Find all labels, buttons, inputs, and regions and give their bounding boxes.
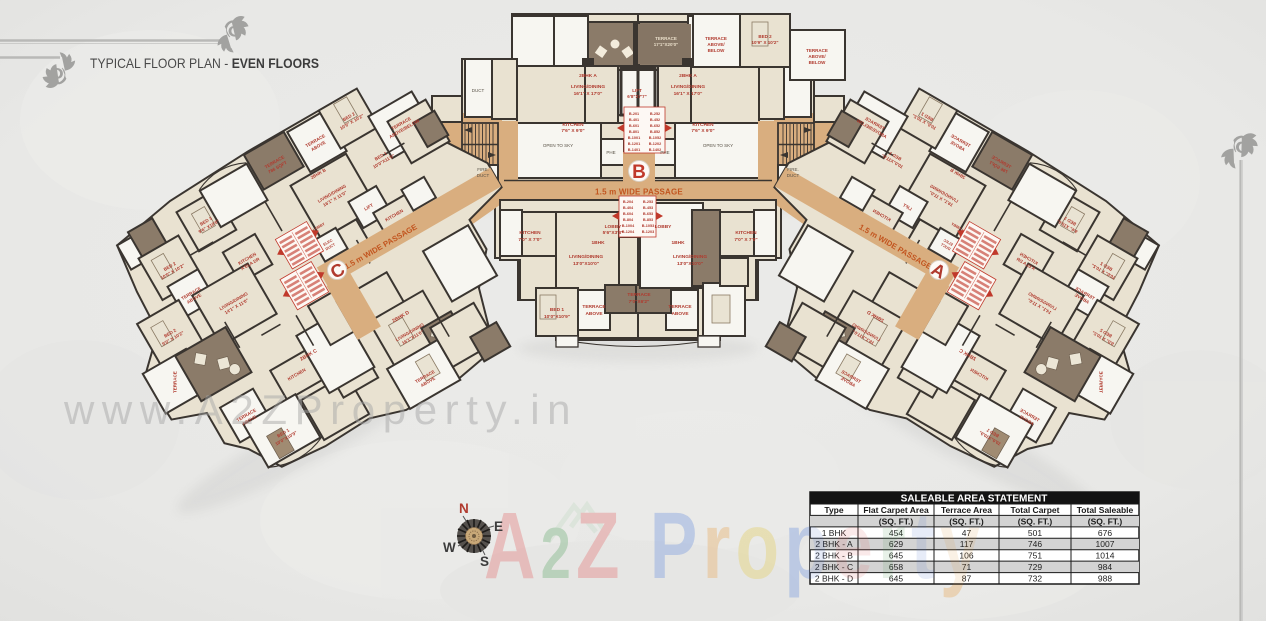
- svg-text:LOBBY: LOBBY: [655, 224, 673, 230]
- svg-text:S: S: [480, 554, 489, 569]
- svg-text:DUCT: DUCT: [477, 173, 490, 178]
- svg-text:988: 988: [1098, 574, 1112, 584]
- svg-text:B-201: B-201: [629, 112, 639, 116]
- svg-text:(SQ. FT.): (SQ. FT.): [1088, 516, 1123, 526]
- svg-text:729: 729: [1028, 562, 1042, 572]
- svg-text:B-652: B-652: [650, 124, 660, 128]
- svg-text:B-452: B-452: [650, 118, 660, 122]
- svg-text:984: 984: [1098, 562, 1112, 572]
- svg-text:6'8"X7'7": 6'8"X7'7": [627, 94, 646, 99]
- svg-text:16'1" X 17'0": 16'1" X 17'0": [574, 91, 603, 97]
- svg-text:LIVING/DINING: LIVING/DINING: [569, 254, 603, 260]
- svg-text:ABOVE/: ABOVE/: [808, 54, 826, 59]
- svg-text:FIRE.: FIRE.: [787, 167, 799, 172]
- svg-text:B-604: B-604: [623, 212, 634, 216]
- svg-text:N: N: [459, 501, 469, 516]
- svg-text:B-1052: B-1052: [649, 136, 661, 140]
- svg-text:KITCHEN: KITCHEN: [562, 122, 584, 128]
- svg-text:BED 1: BED 1: [550, 307, 564, 313]
- svg-text:KITCHEN: KITCHEN: [519, 230, 541, 236]
- svg-text:KITCHEN: KITCHEN: [735, 230, 757, 236]
- svg-text:16'1" X 17'0": 16'1" X 17'0": [674, 91, 703, 97]
- svg-text:B-404: B-404: [623, 206, 634, 210]
- svg-text:1BHK: 1BHK: [671, 240, 685, 246]
- svg-text:PHE: PHE: [606, 150, 615, 155]
- svg-text:B-252: B-252: [650, 112, 660, 116]
- svg-text:B-852: B-852: [650, 130, 660, 134]
- svg-text:B-853: B-853: [643, 218, 653, 222]
- svg-text:B-801: B-801: [629, 130, 639, 134]
- svg-text:LIFT: LIFT: [632, 88, 642, 93]
- svg-text:B-453: B-453: [643, 206, 653, 210]
- svg-text:5'6"X3'8": 5'6"X3'8": [603, 230, 624, 236]
- svg-text:FIRE.: FIRE.: [477, 167, 489, 172]
- svg-text:1007: 1007: [1096, 539, 1115, 549]
- svg-text:B-253: B-253: [643, 200, 653, 204]
- svg-text:B-401: B-401: [629, 118, 639, 122]
- svg-text:TERRACE: TERRACE: [655, 36, 677, 41]
- svg-text:TERRACE: TERRACE: [806, 48, 828, 53]
- svg-text:2BHK A: 2BHK A: [579, 73, 597, 79]
- svg-text:10'0"X10'9": 10'0"X10'9": [544, 314, 570, 320]
- svg-text:KITCHEN: KITCHEN: [692, 122, 714, 128]
- svg-text:DUCT: DUCT: [787, 173, 800, 178]
- svg-text:LIVING/DINING: LIVING/DINING: [671, 84, 705, 90]
- svg-text:TERRACE: TERRACE: [705, 36, 727, 41]
- svg-text:ABOVE: ABOVE: [671, 311, 689, 317]
- svg-text:B-1201: B-1201: [628, 142, 640, 146]
- svg-text:Total Carpet: Total Carpet: [1011, 505, 1060, 515]
- svg-text:DUCT: DUCT: [472, 88, 485, 93]
- svg-text:LOBBY: LOBBY: [605, 224, 623, 230]
- svg-text:B-1402: B-1402: [649, 148, 661, 152]
- svg-text:B-1053: B-1053: [642, 224, 654, 228]
- svg-text:LIVING/DINING: LIVING/DINING: [673, 254, 707, 260]
- svg-text:E: E: [494, 519, 503, 534]
- svg-text:732: 732: [1028, 574, 1042, 584]
- svg-text:7'0" X 7'0": 7'0" X 7'0": [518, 237, 541, 243]
- svg-text:1BHK: 1BHK: [591, 240, 605, 246]
- svg-text:LIVING/DINING: LIVING/DINING: [571, 84, 605, 90]
- svg-text:B-1202: B-1202: [649, 142, 661, 146]
- svg-text:BED 2: BED 2: [758, 34, 772, 39]
- svg-text:B-1004: B-1004: [622, 224, 635, 228]
- svg-text:7'0"X6'2": 7'0"X6'2": [629, 299, 650, 305]
- svg-text:Total Saleable: Total Saleable: [1077, 505, 1134, 515]
- svg-text:B-653: B-653: [643, 212, 653, 216]
- svg-text:B: B: [632, 162, 646, 183]
- svg-text:676: 676: [1098, 528, 1112, 538]
- svg-text:BELOW: BELOW: [809, 60, 827, 65]
- svg-text:OPEN TO SKY: OPEN TO SKY: [703, 143, 733, 148]
- svg-text:TERRACE: TERRACE: [668, 304, 692, 310]
- svg-text:746: 746: [1028, 539, 1042, 549]
- svg-text:7'0" X 7'0": 7'0" X 7'0": [734, 237, 757, 243]
- svg-text:W: W: [443, 540, 456, 555]
- svg-text:B-1401: B-1401: [628, 148, 640, 152]
- svg-text:TERRACE: TERRACE: [582, 304, 606, 310]
- svg-text:PHE: PHE: [660, 150, 669, 155]
- svg-text:13'0"X10'0": 13'0"X10'0": [573, 261, 599, 267]
- svg-text:2BHK A: 2BHK A: [679, 73, 697, 79]
- svg-text:B-204: B-204: [623, 200, 634, 204]
- svg-text:OPEN TO SKY: OPEN TO SKY: [543, 143, 573, 148]
- svg-text:BELOW: BELOW: [708, 48, 726, 53]
- svg-text:B-1001: B-1001: [628, 136, 640, 140]
- svg-text:7'6" X 9'0": 7'6" X 9'0": [561, 128, 584, 134]
- svg-text:501: 501: [1028, 528, 1042, 538]
- svg-text:B-601: B-601: [629, 124, 639, 128]
- svg-text:10'9" X 10'2": 10'9" X 10'2": [752, 40, 779, 45]
- svg-text:7'6" X 9'0": 7'6" X 9'0": [691, 128, 714, 134]
- svg-text:751: 751: [1028, 551, 1042, 561]
- svg-text:ABOVE/: ABOVE/: [707, 42, 725, 47]
- svg-text:B-1204: B-1204: [622, 230, 635, 234]
- svg-text:(SQ. FT.): (SQ. FT.): [1018, 516, 1053, 526]
- svg-text:B-804: B-804: [623, 218, 634, 222]
- svg-text:ABOVE: ABOVE: [585, 311, 603, 317]
- svg-text:17'1"X20'0": 17'1"X20'0": [654, 42, 678, 47]
- svg-text:TERRACE: TERRACE: [627, 292, 651, 298]
- svg-text:1014: 1014: [1096, 551, 1115, 561]
- svg-text:B-1203: B-1203: [642, 230, 654, 234]
- svg-text:1.5 m WIDE PASSAGE: 1.5 m WIDE PASSAGE: [595, 188, 683, 197]
- svg-text:13'0"X10'0": 13'0"X10'0": [677, 261, 703, 267]
